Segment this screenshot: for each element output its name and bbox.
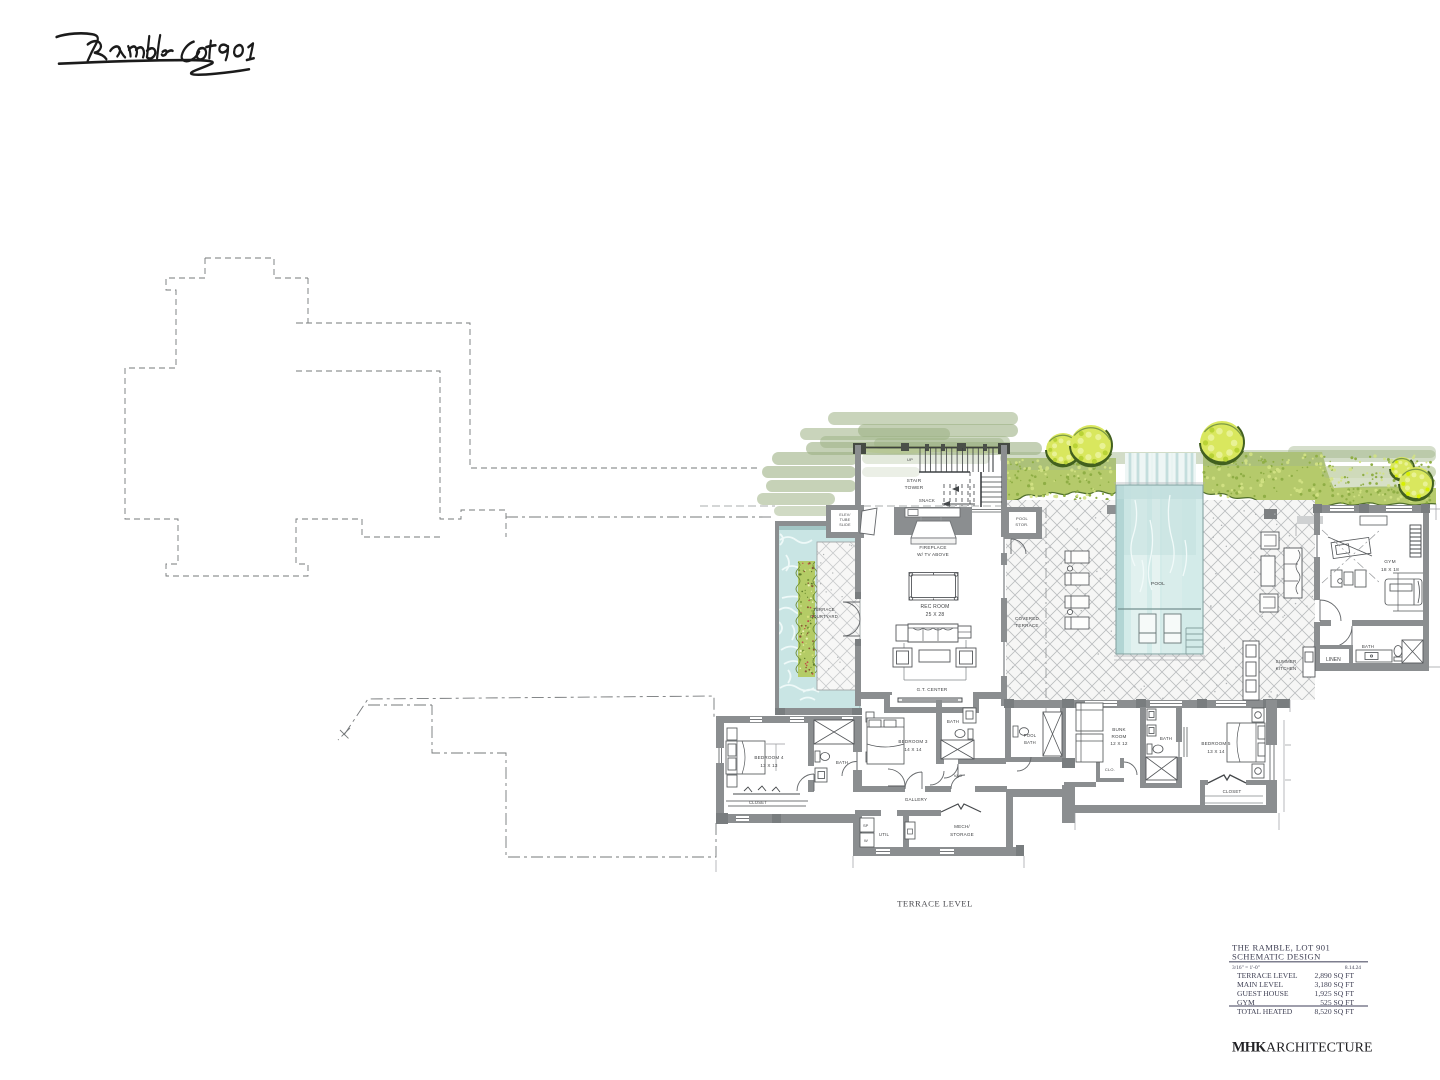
svg-text:ARCHITECTURE: ARCHITECTURE bbox=[1266, 1041, 1373, 1056]
svg-text:14 X 14: 14 X 14 bbox=[904, 747, 921, 752]
svg-text:13 X 14: 13 X 14 bbox=[1207, 749, 1224, 754]
svg-text:BATH: BATH bbox=[836, 760, 848, 765]
svg-text:G.T. CENTER: G.T. CENTER bbox=[917, 687, 948, 692]
svg-text:TOWER: TOWER bbox=[905, 485, 924, 491]
svg-text:TUBE: TUBE bbox=[840, 518, 851, 522]
svg-text:BATH: BATH bbox=[1362, 644, 1374, 649]
svg-text:TERRACE LEVEL: TERRACE LEVEL bbox=[897, 899, 973, 909]
svg-text:SCHEMATIC DESIGN: SCHEMATIC DESIGN bbox=[1232, 952, 1321, 962]
svg-text:KITCHEN: KITCHEN bbox=[1276, 666, 1297, 671]
svg-text:W: W bbox=[864, 838, 868, 843]
svg-text:25 X 28: 25 X 28 bbox=[926, 612, 945, 618]
svg-text:SLIDE: SLIDE bbox=[839, 523, 851, 527]
svg-text:TERRACE LEVEL: TERRACE LEVEL bbox=[1237, 971, 1298, 980]
svg-text:MAIN LEVEL: MAIN LEVEL bbox=[1237, 980, 1284, 989]
svg-text:W/ TV ABOVE: W/ TV ABOVE bbox=[917, 552, 949, 557]
svg-text:STORAGE: STORAGE bbox=[950, 832, 974, 837]
svg-text:1,925 SQ FT: 1,925 SQ FT bbox=[1315, 989, 1355, 998]
svg-text:BATH: BATH bbox=[947, 719, 959, 724]
svg-text:STOR.: STOR. bbox=[1015, 522, 1028, 527]
svg-text:POOL: POOL bbox=[1024, 733, 1037, 738]
svg-text:SNACK: SNACK bbox=[919, 498, 935, 503]
svg-text:REC ROOM: REC ROOM bbox=[920, 604, 949, 610]
svg-text:UP: UP bbox=[907, 457, 913, 462]
svg-text:SUMMER: SUMMER bbox=[1276, 659, 1297, 664]
svg-text:POOL: POOL bbox=[1016, 516, 1028, 521]
svg-text:2,890 SQ FT: 2,890 SQ FT bbox=[1315, 971, 1355, 980]
svg-text:BUNK: BUNK bbox=[1112, 727, 1126, 732]
svg-text:LINEN: LINEN bbox=[1326, 657, 1341, 663]
svg-text:TOTAL HEATED: TOTAL HEATED bbox=[1237, 1007, 1293, 1016]
svg-text:CLOSET: CLOSET bbox=[1223, 789, 1242, 794]
svg-text:ROOM: ROOM bbox=[1111, 734, 1126, 739]
svg-text:FIREPLACE: FIREPLACE bbox=[919, 545, 946, 550]
svg-text:BEDROOM 3: BEDROOM 3 bbox=[898, 739, 928, 744]
svg-text:COVERED: COVERED bbox=[1015, 616, 1040, 621]
svg-text:TERRACE: TERRACE bbox=[1015, 623, 1038, 628]
svg-text:3,180 SQ FT: 3,180 SQ FT bbox=[1315, 980, 1355, 989]
svg-text:UTIL: UTIL bbox=[879, 832, 890, 837]
svg-text:POOL: POOL bbox=[1151, 581, 1165, 587]
svg-text:BEDROOM 4: BEDROOM 4 bbox=[754, 755, 784, 760]
svg-text:13 X 13: 13 X 13 bbox=[760, 763, 777, 768]
svg-text:MHK: MHK bbox=[1232, 1040, 1266, 1056]
svg-text:8,520 SQ FT: 8,520 SQ FT bbox=[1315, 1007, 1355, 1016]
svg-text:BEDROOM 5: BEDROOM 5 bbox=[1201, 741, 1231, 746]
svg-text:VAC: VAC bbox=[954, 773, 963, 778]
svg-text:ELEV/: ELEV/ bbox=[839, 513, 850, 517]
svg-text:BATH: BATH bbox=[1024, 740, 1036, 745]
svg-text:SP: SP bbox=[863, 823, 869, 828]
svg-text:TERRACE: TERRACE bbox=[813, 607, 834, 612]
svg-text:12 X 12: 12 X 12 bbox=[1110, 741, 1127, 746]
svg-text:COURTYARD: COURTYARD bbox=[810, 614, 838, 619]
svg-text:GALLERY: GALLERY bbox=[905, 797, 928, 802]
svg-text:BATH: BATH bbox=[1160, 736, 1172, 741]
svg-text:GYM: GYM bbox=[1384, 559, 1396, 565]
svg-text:CLOSET: CLOSET bbox=[749, 800, 767, 805]
svg-text:18 X 18: 18 X 18 bbox=[1381, 567, 1399, 573]
svg-text:STAIR: STAIR bbox=[907, 478, 922, 484]
svg-text:MECH/: MECH/ bbox=[954, 824, 970, 829]
svg-text:CLO.: CLO. bbox=[1105, 767, 1115, 772]
svg-text:GUEST HOUSE: GUEST HOUSE bbox=[1237, 989, 1289, 998]
